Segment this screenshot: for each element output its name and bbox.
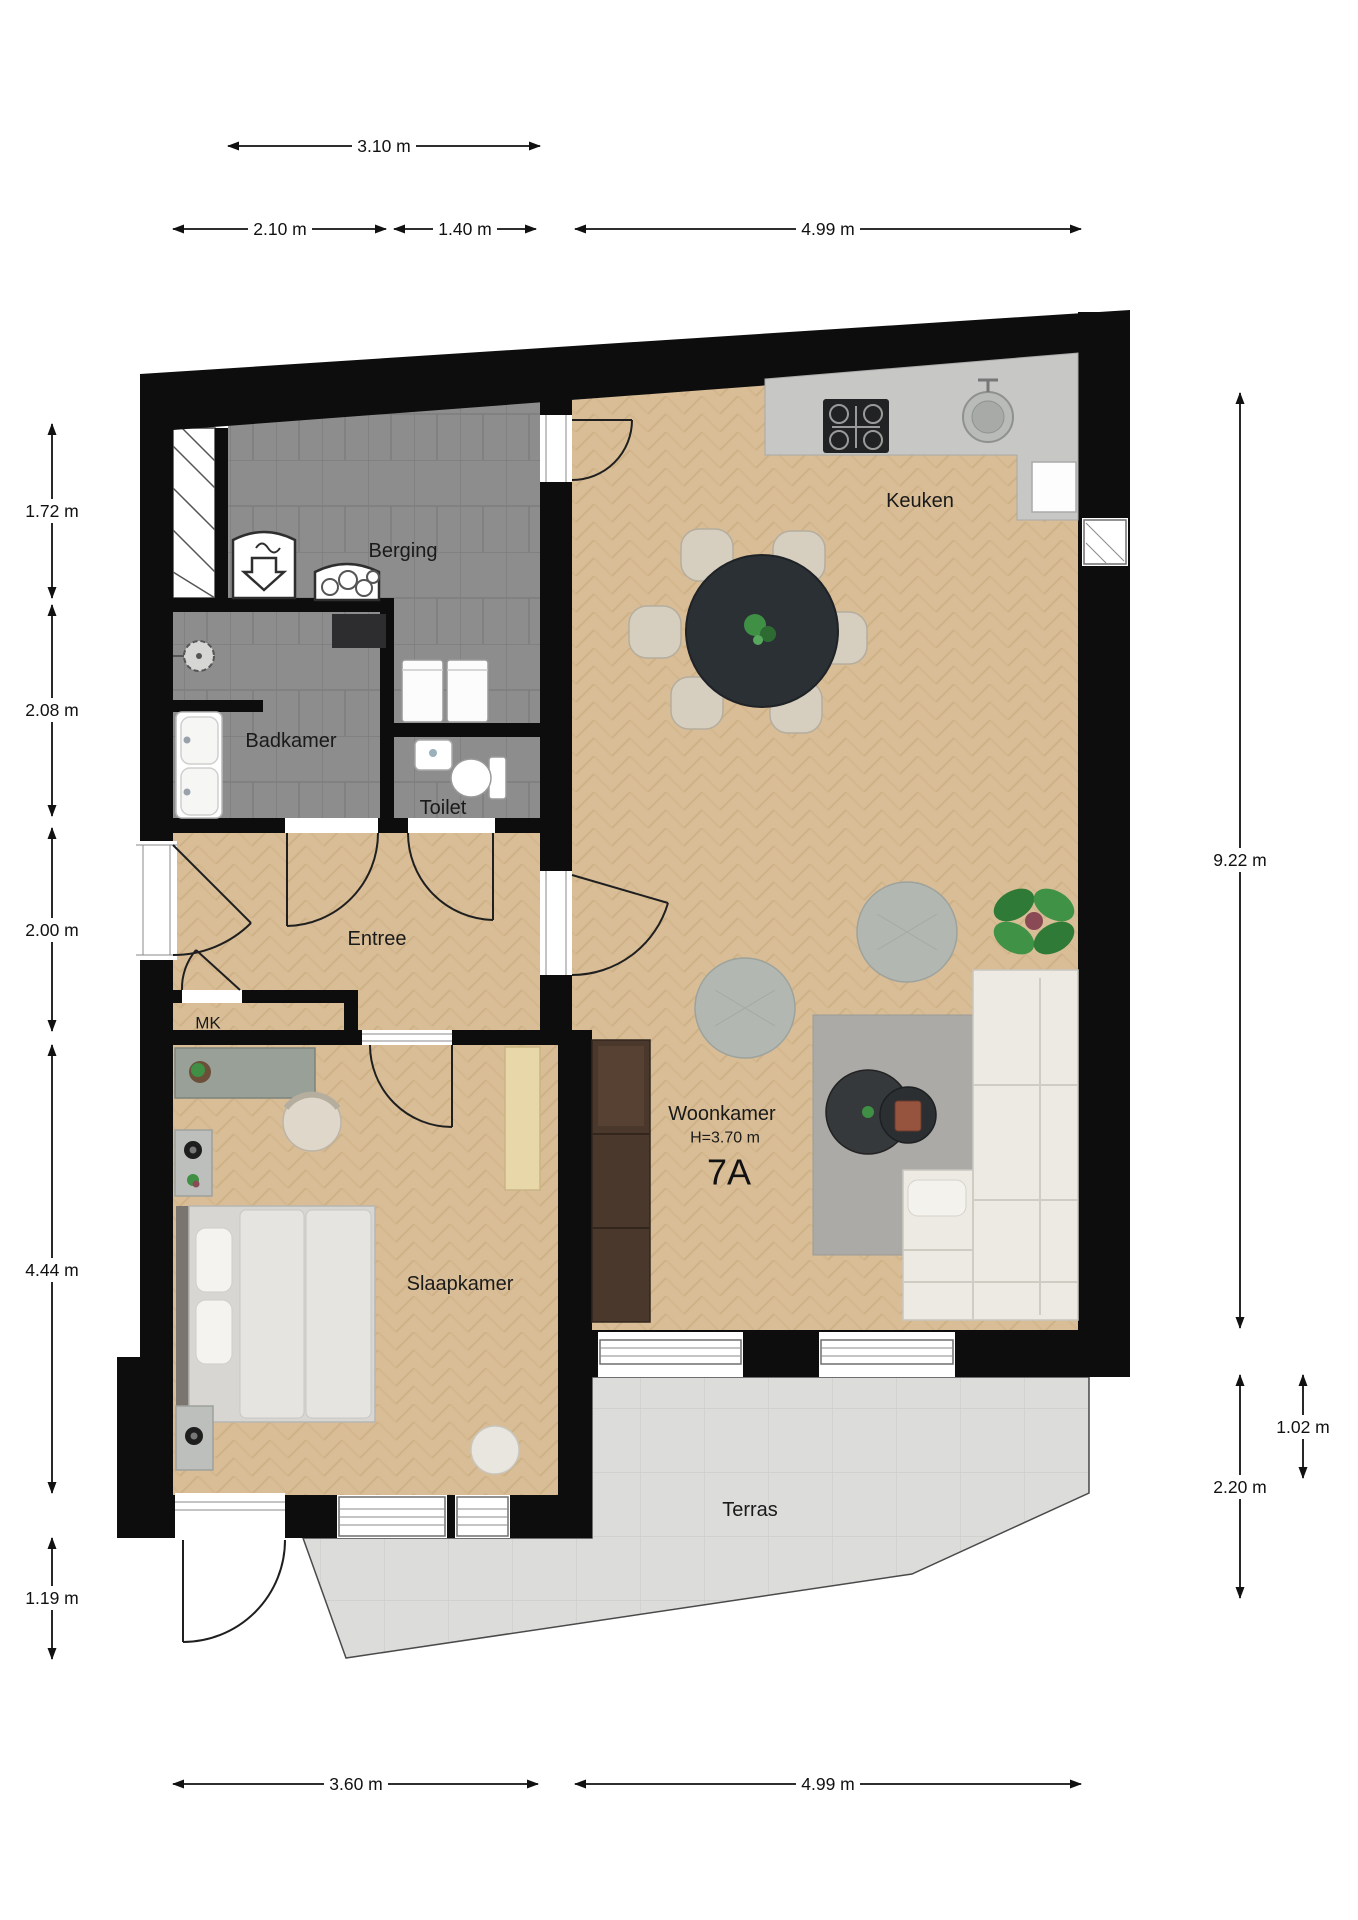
boiler-unit-icon — [315, 564, 379, 600]
svg-text:2.10 m: 2.10 m — [253, 219, 307, 239]
dim-living-total-depth: 9.22 m — [1207, 393, 1273, 1328]
double-washbasin — [176, 712, 222, 818]
wall-badkamer-bottom-3 — [495, 818, 540, 833]
svg-text:4.99 m: 4.99 m — [801, 1774, 855, 1794]
label-slaapkamer: Slaapkamer — [407, 1273, 514, 1295]
floors — [173, 358, 1089, 1658]
label-keuken: Keuken — [886, 490, 954, 512]
wall-shelf — [505, 1047, 540, 1190]
sofa-pillow — [908, 1180, 966, 1216]
wall-entree-slaapkamer-1 — [140, 1030, 362, 1045]
svg-text:3.60 m: 3.60 m — [329, 1774, 383, 1794]
nightstand-2 — [176, 1406, 213, 1470]
wall-mk-top-2 — [242, 990, 350, 1003]
wall-badkamer-bottom-1 — [173, 818, 285, 833]
svg-text:1.19 m: 1.19 m — [25, 1588, 79, 1608]
dim-woonkamer-width-top: 4.99 m — [575, 217, 1081, 241]
dim-terras-depth: 2.20 m — [1207, 1375, 1273, 1598]
bedroom-pouf — [471, 1426, 519, 1474]
bed — [176, 1206, 375, 1422]
wall-shower-stub — [173, 700, 263, 712]
dim-slaapkamer-width: 3.60 m — [173, 1772, 538, 1796]
wall-shaft-stub — [215, 428, 228, 598]
wall-mk-top-1 — [173, 990, 182, 1003]
dim-berging-width: 3.10 m — [228, 134, 540, 158]
toilet-sink-icon — [415, 740, 452, 770]
svg-text:9.22 m: 9.22 m — [1213, 850, 1267, 870]
keuken-window — [1082, 518, 1128, 566]
svg-text:2.00 m: 2.00 m — [25, 920, 79, 940]
svg-text:1.40 m: 1.40 m — [438, 219, 492, 239]
cooktop-icon — [823, 399, 889, 453]
label-woonkamer: Woonkamer — [668, 1103, 776, 1125]
dim-berging-depth: 1.72 m — [19, 424, 85, 598]
dim-terras-left-depth: 1.19 m — [19, 1538, 85, 1659]
woonkamer-window-1 — [598, 1332, 743, 1377]
label-terras: Terras — [722, 1499, 778, 1521]
label-unit-number: 7A — [707, 1152, 751, 1193]
woonkamer-window-2 — [819, 1332, 955, 1377]
label-ceiling-height: H=3.70 m — [690, 1130, 760, 1147]
terras-door — [175, 1493, 285, 1642]
svg-text:1.72 m: 1.72 m — [25, 501, 79, 521]
shaft-hatched-area — [173, 428, 215, 598]
wardrobe — [592, 1040, 650, 1322]
dim-badkamer-width: 2.10 m — [173, 217, 386, 241]
label-toilet: Toilet — [420, 797, 467, 819]
dim-entree-depth: 2.00 m — [19, 828, 85, 1031]
label-mk: MK — [195, 1014, 221, 1033]
svg-text:1.02 m: 1.02 m — [1276, 1417, 1330, 1437]
desk-chair — [283, 1093, 341, 1151]
svg-text:2.08 m: 2.08 m — [25, 700, 79, 720]
dim-badkamer-depth: 2.08 m — [19, 605, 85, 816]
svg-text:3.10 m: 3.10 m — [357, 136, 411, 156]
kitchen-appliance — [1032, 462, 1076, 512]
dim-toilet-zone-width: 1.40 m — [394, 217, 536, 241]
bathroom-cabinet — [332, 614, 386, 648]
ventilation-unit-icon — [233, 532, 295, 598]
toilet-bowl-icon — [451, 757, 506, 799]
desk — [175, 1048, 315, 1098]
nightstand-1 — [175, 1130, 212, 1196]
svg-text:4.44 m: 4.44 m — [25, 1260, 79, 1280]
wall-left-lower — [117, 1357, 173, 1507]
label-berging: Berging — [369, 540, 438, 562]
wall-bedroom-living — [558, 1030, 592, 1497]
floor-plan-canvas: Berging Badkamer Toilet Entree MK Slaapk… — [0, 0, 1358, 1920]
svg-text:4.99 m: 4.99 m — [801, 219, 855, 239]
slaapkamer-window-2 — [455, 1495, 510, 1538]
wall-badkamer-bottom-2 — [378, 818, 408, 833]
dim-slaapkamer-depth: 4.44 m — [19, 1045, 85, 1493]
svg-text:2.20 m: 2.20 m — [1213, 1477, 1267, 1497]
label-entree: Entree — [348, 928, 407, 950]
dim-terras-step: 1.02 m — [1270, 1375, 1336, 1478]
dim-woonkamer-width-bottom: 4.99 m — [575, 1772, 1081, 1796]
wall-right — [1078, 312, 1130, 1377]
wall-berging-toilet — [394, 723, 540, 737]
slaapkamer-window-1 — [337, 1495, 447, 1538]
wall-entree-slaapkamer-2 — [452, 1030, 558, 1045]
label-badkamer: Badkamer — [245, 730, 336, 752]
